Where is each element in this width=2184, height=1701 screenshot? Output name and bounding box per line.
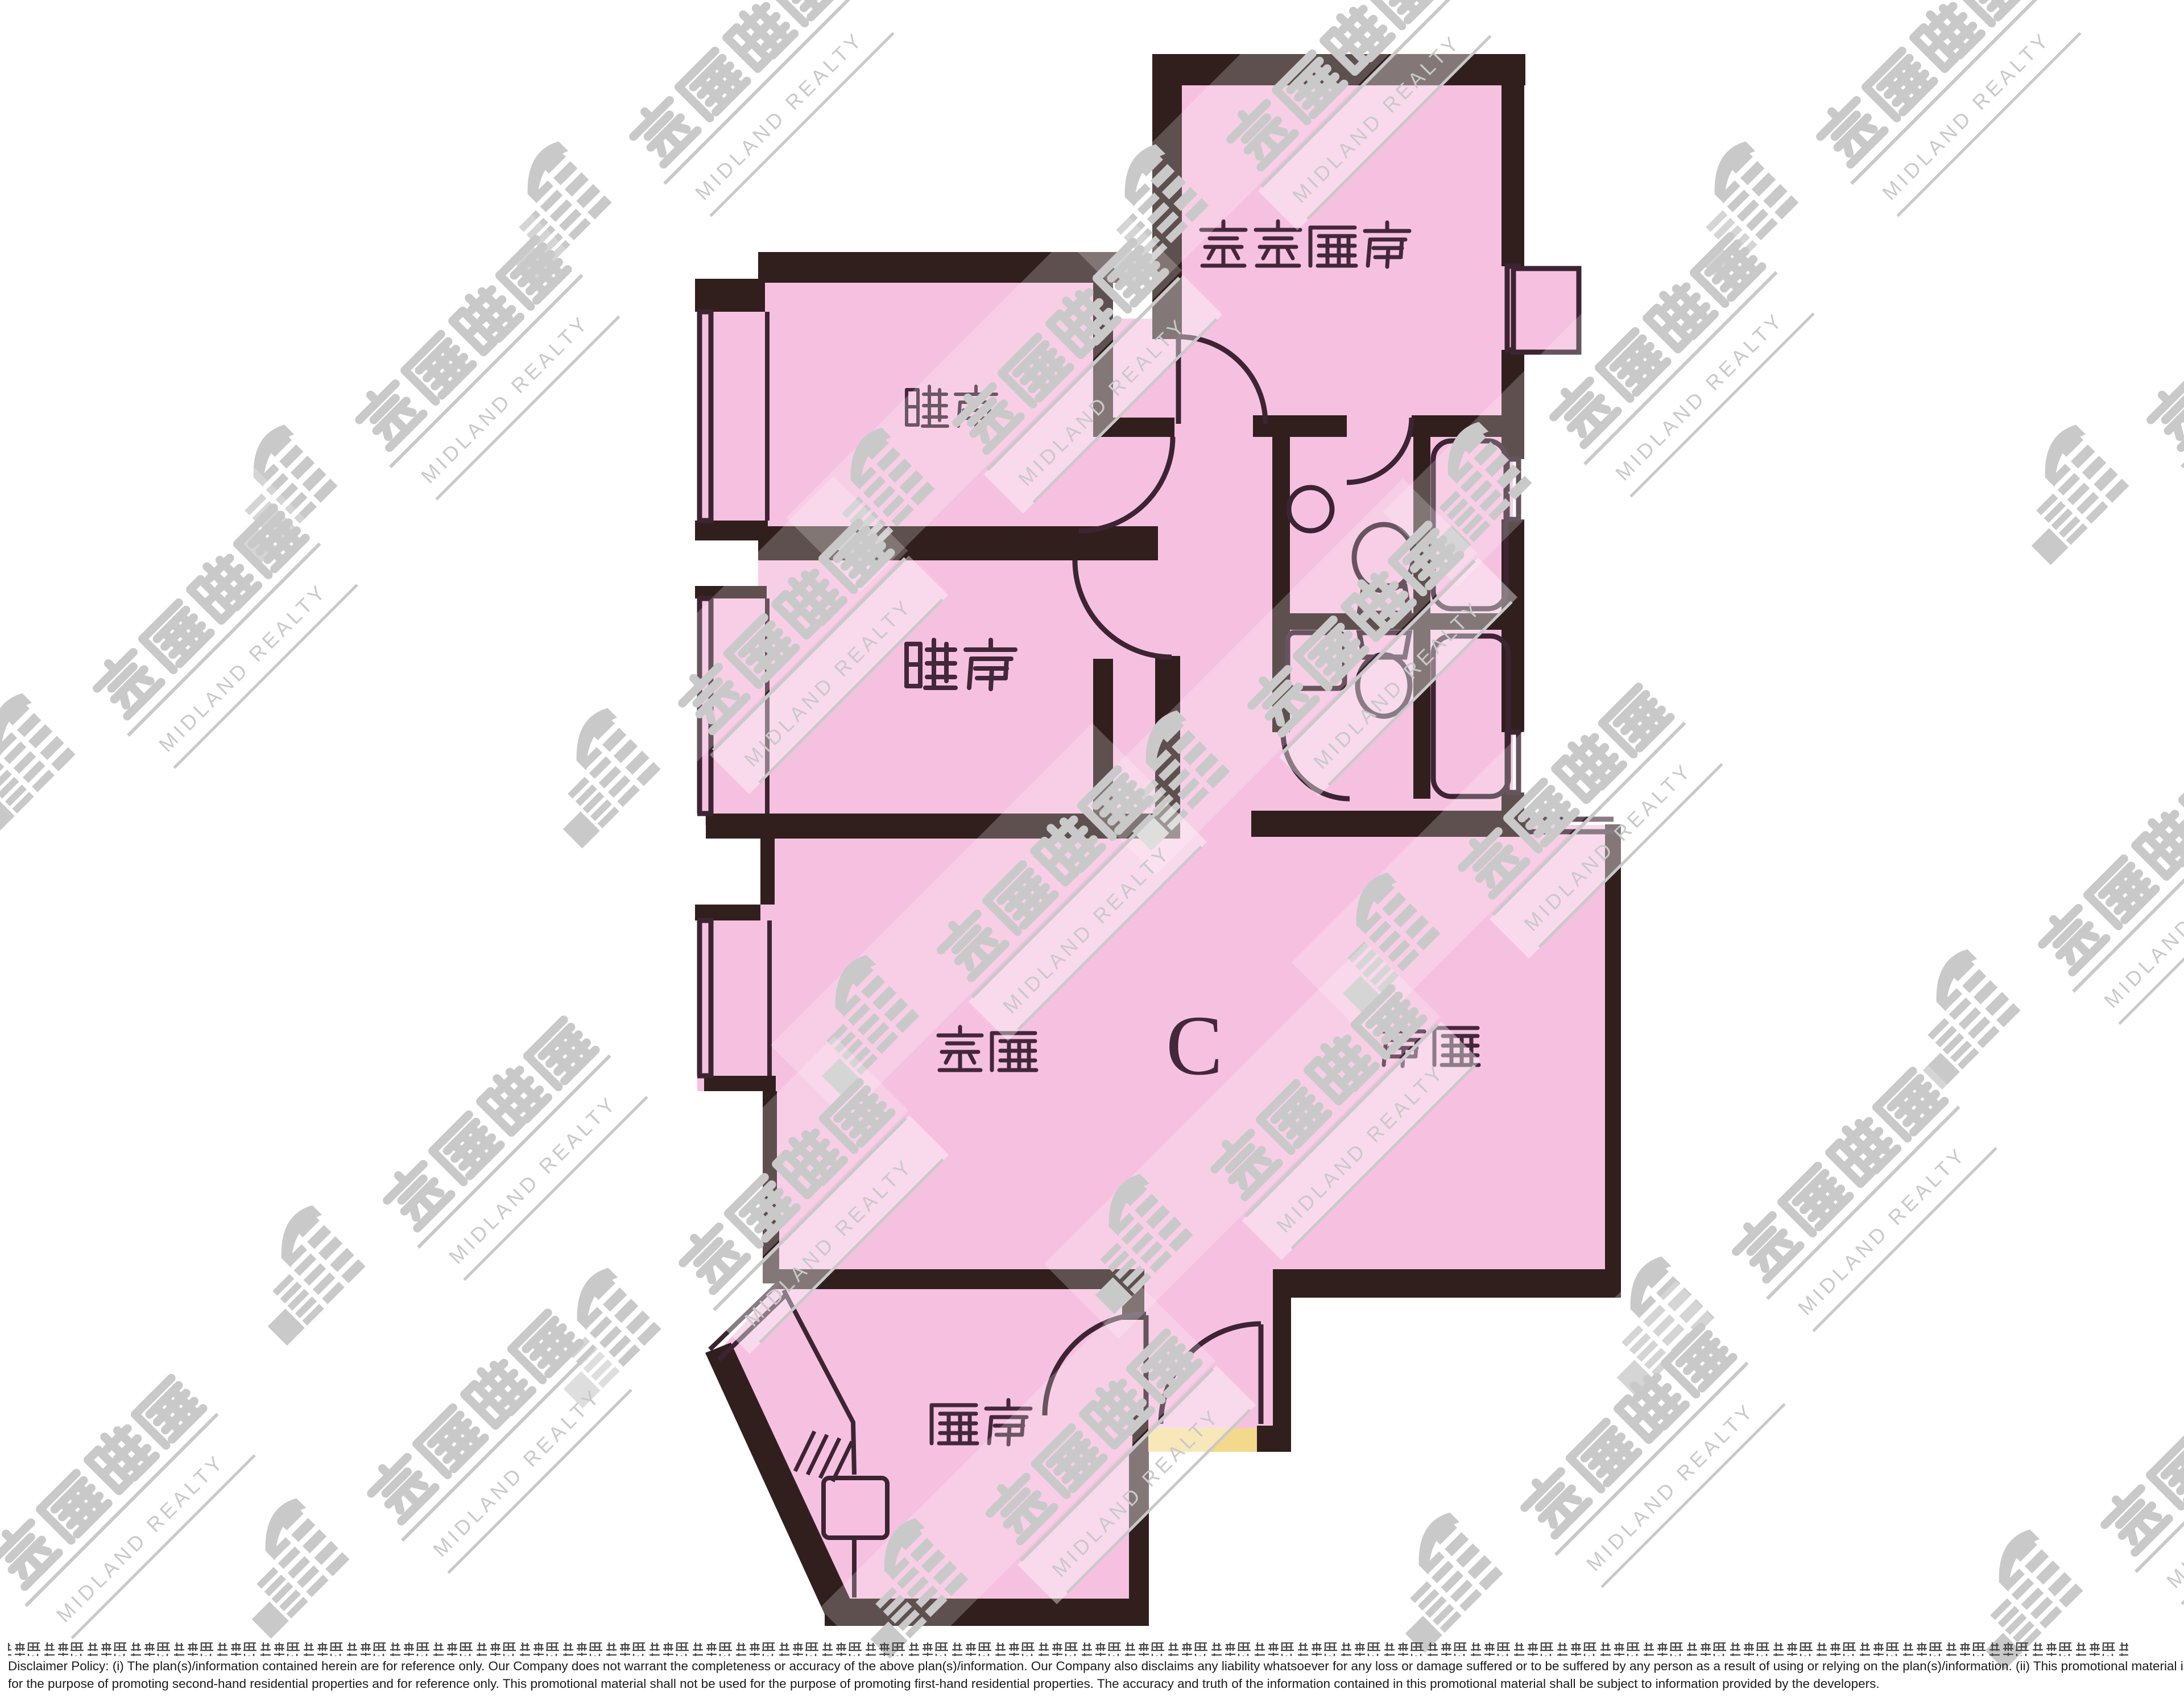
svg-text:Disclaimer Policy: (i) The pla: Disclaimer Policy: (i) The plan(s)/infor…: [8, 1659, 2184, 1673]
svg-text:C: C: [1166, 998, 1223, 1093]
svg-text:for the purpose of promoting s: for the purpose of promoting second-hand…: [8, 1677, 1880, 1691]
